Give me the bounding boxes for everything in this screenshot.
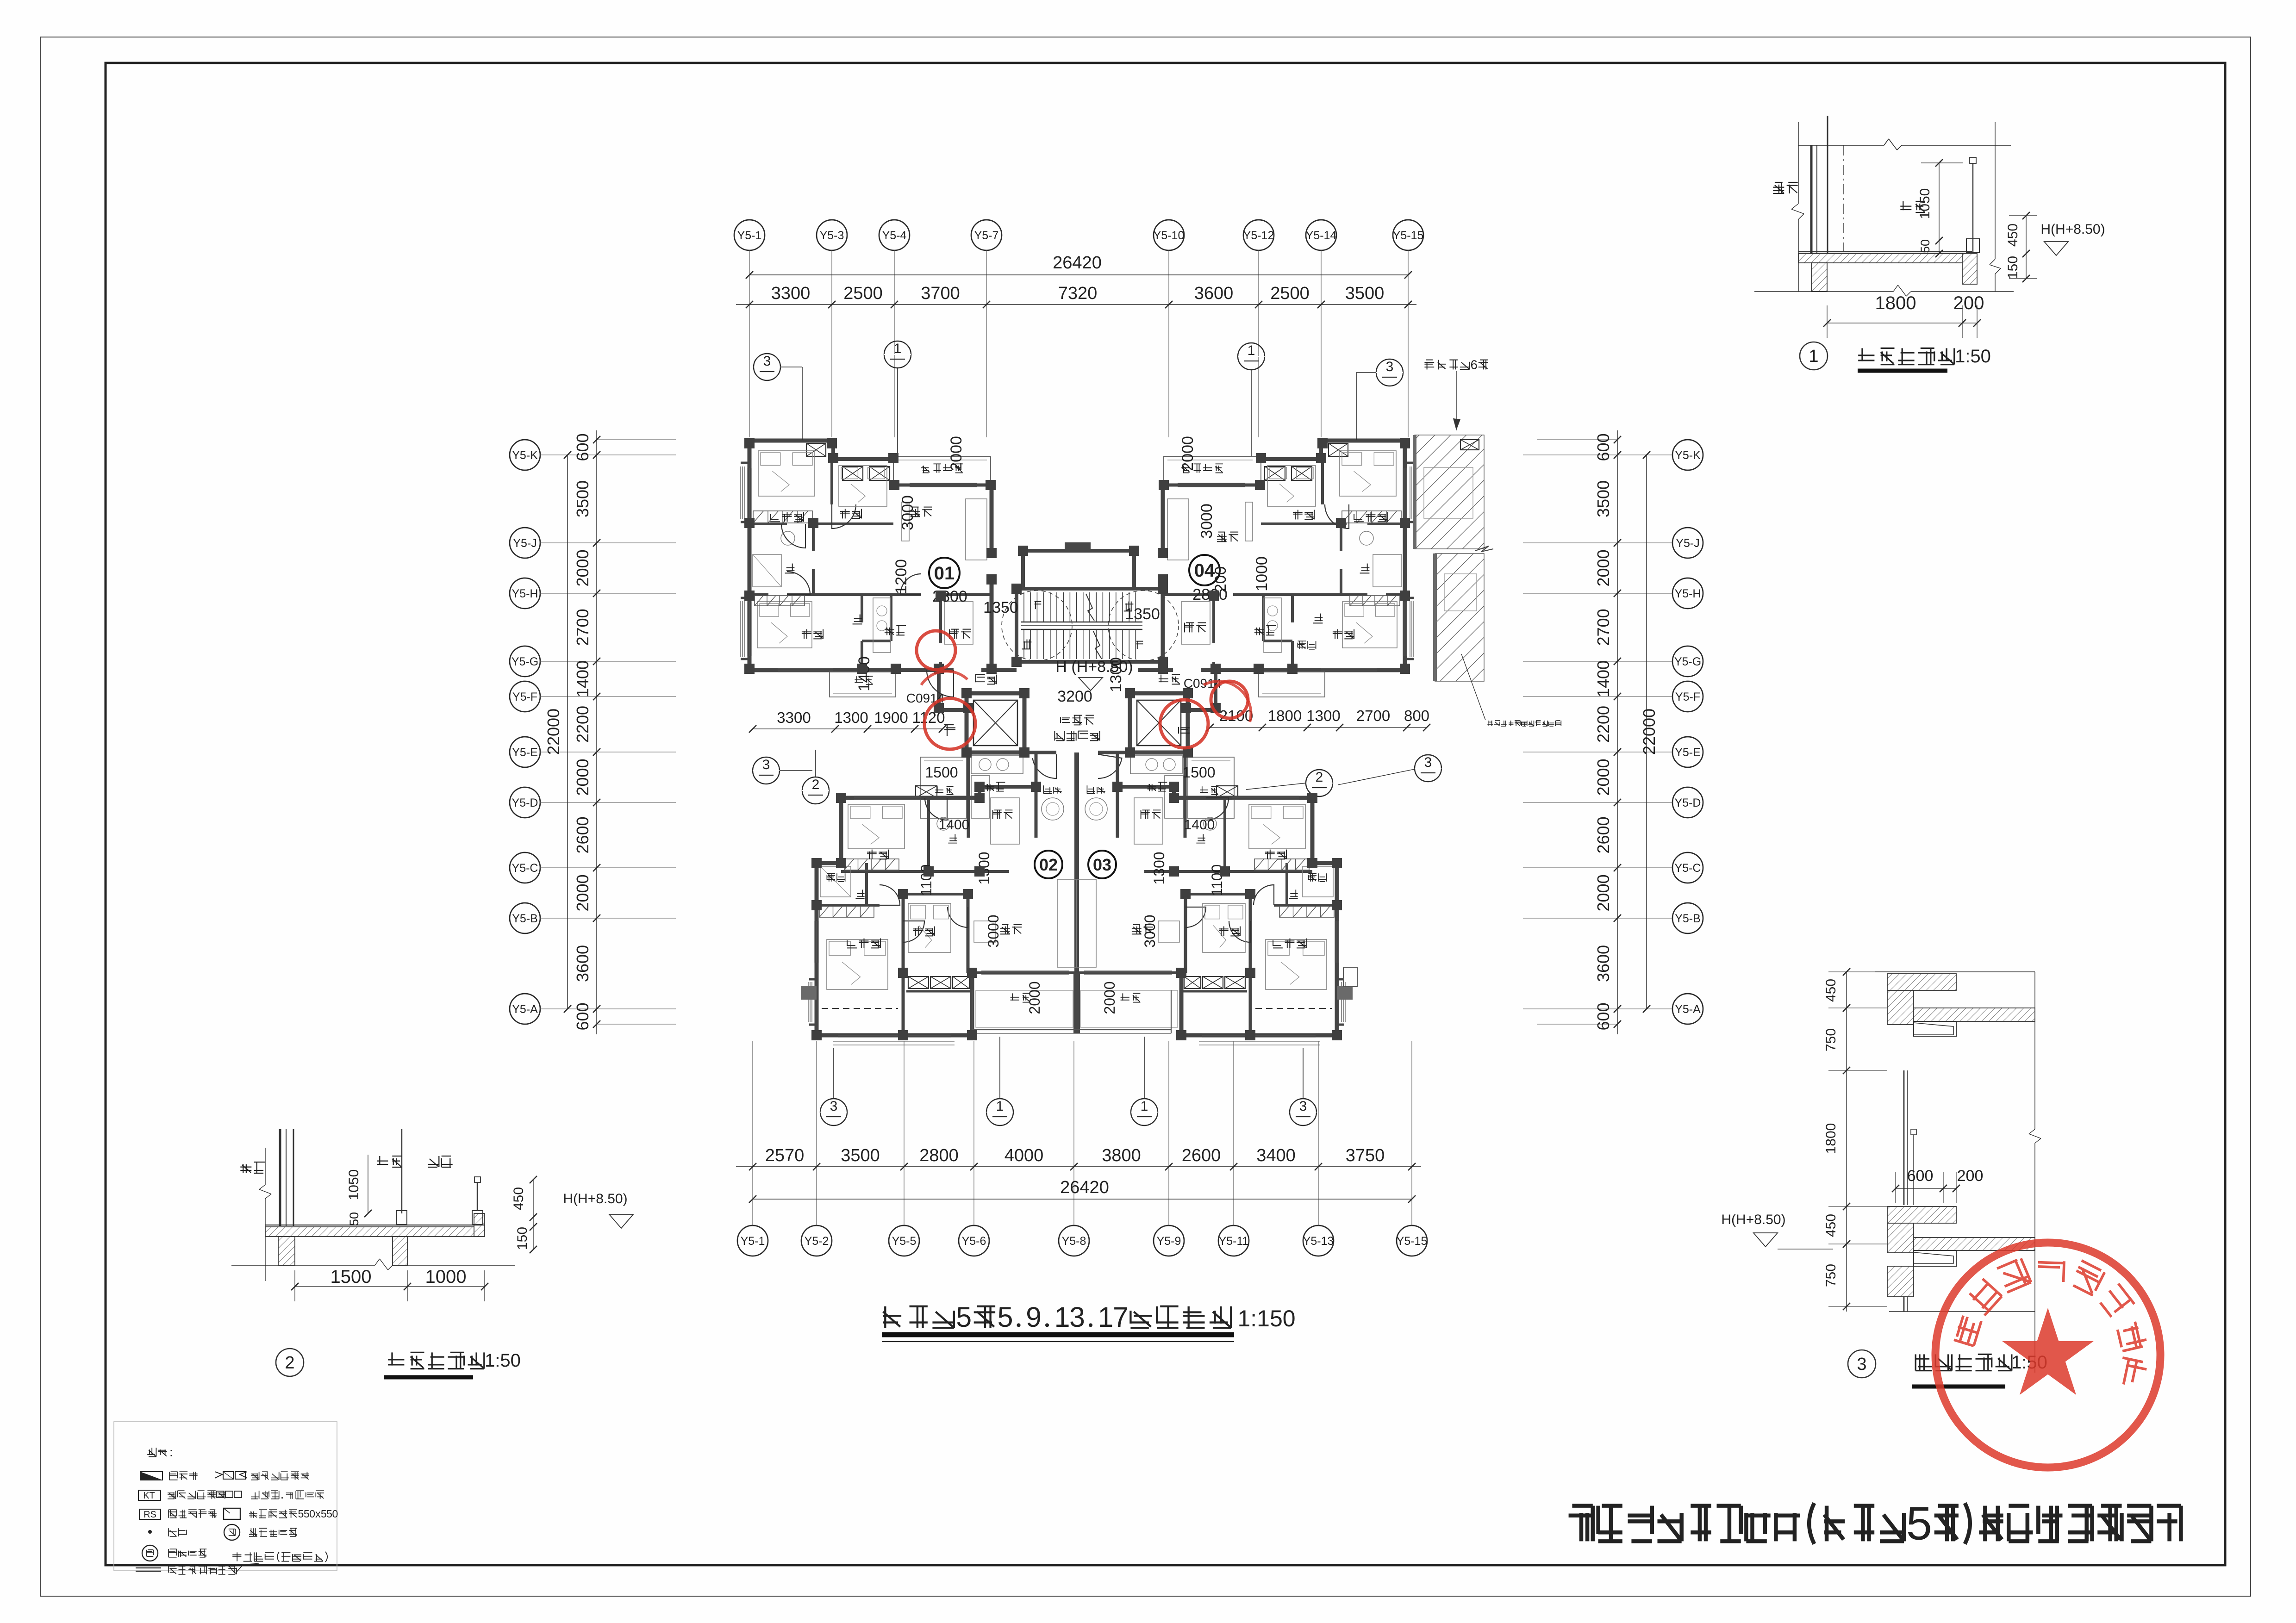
svg-text:Y5-E: Y5-E <box>512 746 538 759</box>
svg-text:750: 750 <box>1823 1264 1839 1287</box>
svg-text:9: 9 <box>1026 1301 1042 1333</box>
svg-text:Y5-C: Y5-C <box>512 862 538 875</box>
svg-text:7320: 7320 <box>1058 284 1098 303</box>
svg-text:5: 5 <box>304 1508 310 1520</box>
svg-text:1800: 1800 <box>1875 293 1916 313</box>
svg-text:1350: 1350 <box>983 599 1018 616</box>
svg-text:5: 5 <box>298 1508 304 1520</box>
svg-text:2200: 2200 <box>573 706 592 743</box>
svg-text:Y5-11: Y5-11 <box>1219 1235 1249 1248</box>
svg-text:1900: 1900 <box>874 709 908 726</box>
svg-text:0: 0 <box>309 1508 315 1520</box>
svg-text:1000: 1000 <box>425 1267 467 1287</box>
svg-text:3000: 3000 <box>985 914 1002 947</box>
svg-text:Y5-E: Y5-E <box>1675 746 1701 759</box>
svg-text:1:50: 1:50 <box>1955 346 1991 367</box>
svg-text:22000: 22000 <box>1640 709 1659 755</box>
svg-text:H(H+8.50): H(H+8.50) <box>563 1191 627 1206</box>
svg-text:3500: 3500 <box>1594 480 1613 517</box>
svg-text:2700: 2700 <box>1356 707 1390 724</box>
svg-text:1350: 1350 <box>1125 605 1160 623</box>
svg-text:3500: 3500 <box>573 480 592 517</box>
svg-text:H(H+8.50): H(H+8.50) <box>1721 1212 1785 1227</box>
svg-text:2000: 2000 <box>573 549 592 586</box>
svg-text:01: 01 <box>934 563 955 584</box>
svg-text:1: 1 <box>996 1099 1004 1114</box>
svg-text:Y5-J: Y5-J <box>513 537 537 550</box>
svg-text:Y5-1: Y5-1 <box>741 1235 765 1248</box>
svg-text:Y5-9: Y5-9 <box>1157 1235 1181 1248</box>
svg-text:200: 200 <box>1957 1167 1984 1185</box>
svg-text:22000: 22000 <box>544 709 563 755</box>
svg-text:600: 600 <box>573 433 592 461</box>
svg-text:Y5-1: Y5-1 <box>737 229 762 242</box>
svg-text:Y5-15: Y5-15 <box>1393 229 1424 242</box>
svg-text:Y5-7: Y5-7 <box>974 229 999 242</box>
svg-text:1200: 1200 <box>892 559 910 594</box>
svg-text:2600: 2600 <box>1594 816 1613 853</box>
svg-text:H (H+8.50): H (H+8.50) <box>1055 658 1133 676</box>
svg-text:1:50: 1:50 <box>485 1350 521 1371</box>
svg-text:3: 3 <box>1299 1099 1307 1114</box>
svg-text:2200: 2200 <box>1594 706 1613 743</box>
svg-text:600: 600 <box>1907 1167 1934 1185</box>
svg-text:3600: 3600 <box>1194 284 1234 303</box>
svg-text:2000: 2000 <box>1101 981 1118 1014</box>
svg-text:Y5-D: Y5-D <box>512 796 538 809</box>
svg-text:5: 5 <box>321 1508 327 1520</box>
svg-text:200: 200 <box>1953 293 1984 313</box>
svg-text:600: 600 <box>1594 1002 1613 1030</box>
svg-text:2600: 2600 <box>1182 1146 1221 1165</box>
svg-text:KT: KT <box>143 1491 155 1501</box>
svg-text:1000: 1000 <box>1253 556 1271 591</box>
svg-text:3700: 3700 <box>921 284 960 303</box>
svg-text:2000: 2000 <box>1594 874 1613 911</box>
svg-text:1: 1 <box>1141 1099 1148 1114</box>
svg-text:26420: 26420 <box>1053 253 1102 273</box>
svg-text:3: 3 <box>762 757 770 772</box>
svg-text:26420: 26420 <box>1060 1178 1109 1197</box>
svg-text:3500: 3500 <box>841 1146 880 1165</box>
svg-text:450: 450 <box>511 1187 526 1210</box>
svg-text:2600: 2600 <box>573 816 592 853</box>
svg-text:1050: 1050 <box>346 1169 362 1200</box>
svg-text:2700: 2700 <box>573 609 592 646</box>
svg-text:5: 5 <box>326 1508 332 1520</box>
svg-text:600: 600 <box>1594 433 1613 461</box>
svg-text:3000: 3000 <box>1142 914 1158 947</box>
svg-text:1500: 1500 <box>925 764 958 781</box>
svg-text:2570: 2570 <box>765 1146 805 1165</box>
svg-text:3: 3 <box>830 1099 838 1114</box>
svg-text:7: 7 <box>1113 1301 1129 1333</box>
svg-text:Y5-12: Y5-12 <box>1243 229 1274 242</box>
svg-text:3: 3 <box>1386 359 1394 374</box>
svg-text:03: 03 <box>1093 855 1111 874</box>
svg-text:1400: 1400 <box>573 660 592 697</box>
svg-text:50: 50 <box>1918 239 1932 253</box>
svg-text:3: 3 <box>1424 755 1432 770</box>
svg-text:1: 1 <box>1098 1301 1114 1333</box>
svg-text:Y5-B: Y5-B <box>1675 912 1701 925</box>
svg-text:Y5-G: Y5-G <box>512 655 538 668</box>
svg-text:Y5-C: Y5-C <box>1675 862 1701 875</box>
svg-text:5: 5 <box>956 1301 972 1333</box>
svg-text:1500: 1500 <box>1182 764 1215 781</box>
svg-text:3000: 3000 <box>1198 504 1216 539</box>
svg-text:3: 3 <box>763 354 771 369</box>
svg-text:Y5-10: Y5-10 <box>1154 229 1185 242</box>
svg-text:2000: 2000 <box>948 436 965 471</box>
svg-text:Y5-A: Y5-A <box>1675 1003 1701 1016</box>
svg-text:2000: 2000 <box>573 874 592 911</box>
svg-text:Y5-G: Y5-G <box>1674 655 1701 668</box>
svg-text:2000: 2000 <box>1179 436 1197 471</box>
svg-text:600: 600 <box>573 1002 592 1030</box>
svg-text:2000: 2000 <box>573 759 592 796</box>
svg-text:1400: 1400 <box>939 817 970 833</box>
svg-text:Y5-15: Y5-15 <box>1397 1235 1428 1248</box>
svg-text:3000: 3000 <box>899 495 917 530</box>
svg-text:Y5-3: Y5-3 <box>820 229 844 242</box>
svg-text:450: 450 <box>1823 1214 1839 1237</box>
svg-text:6: 6 <box>1471 357 1478 372</box>
svg-text:2500: 2500 <box>1270 284 1310 303</box>
svg-text:3800: 3800 <box>1102 1146 1141 1165</box>
svg-text:Y5-13: Y5-13 <box>1303 1235 1334 1248</box>
svg-text:02: 02 <box>1039 855 1058 874</box>
svg-text::: : <box>169 1446 173 1459</box>
svg-text:1500: 1500 <box>331 1267 372 1287</box>
svg-text:2000: 2000 <box>1594 759 1613 796</box>
svg-text:Y5-K: Y5-K <box>1675 449 1701 462</box>
svg-text:Y5-A: Y5-A <box>512 1003 538 1016</box>
svg-text:Y5-F: Y5-F <box>512 690 537 703</box>
svg-text:2: 2 <box>812 777 820 792</box>
svg-text:1400: 1400 <box>1184 817 1215 833</box>
svg-text:2: 2 <box>285 1353 294 1373</box>
svg-text:Y5-2: Y5-2 <box>805 1235 829 1248</box>
svg-text:Y5-5: Y5-5 <box>892 1235 917 1248</box>
svg-text:Y5-K: Y5-K <box>512 449 538 462</box>
svg-text:Y5-J: Y5-J <box>1676 537 1699 550</box>
svg-text:Y5-6: Y5-6 <box>962 1235 986 1248</box>
svg-text:3600: 3600 <box>1594 945 1613 982</box>
svg-text:1300: 1300 <box>1306 707 1340 724</box>
svg-text:3500: 3500 <box>1345 284 1385 303</box>
svg-text:3: 3 <box>1857 1355 1866 1374</box>
svg-text:Y5-D: Y5-D <box>1675 796 1701 809</box>
svg-text:2500: 2500 <box>843 284 883 303</box>
svg-text:3200: 3200 <box>1057 688 1092 705</box>
svg-text:3: 3 <box>1069 1301 1085 1333</box>
svg-text:4000: 4000 <box>1004 1146 1044 1165</box>
svg-text:RS: RS <box>143 1510 156 1520</box>
svg-text:1800: 1800 <box>1823 1123 1839 1154</box>
svg-text:2700: 2700 <box>1594 609 1613 646</box>
svg-text:0: 0 <box>332 1508 338 1520</box>
svg-text:450: 450 <box>2005 224 2021 247</box>
svg-text:Y5-4: Y5-4 <box>882 229 907 242</box>
svg-text:Y5-8: Y5-8 <box>1062 1235 1086 1248</box>
svg-text:750: 750 <box>1823 1028 1839 1051</box>
svg-text:Y5-F: Y5-F <box>1675 690 1700 703</box>
svg-text:5: 5 <box>998 1301 1013 1333</box>
svg-text:1: 1 <box>1809 347 1818 366</box>
svg-text:2000: 2000 <box>1594 549 1613 586</box>
svg-text:3400: 3400 <box>1256 1146 1296 1165</box>
svg-text:1: 1 <box>1054 1301 1070 1333</box>
svg-text:3600: 3600 <box>573 945 592 982</box>
svg-text:Y5-H: Y5-H <box>1675 587 1701 600</box>
svg-text:H(H+8.50): H(H+8.50) <box>2040 222 2105 237</box>
svg-text:x: x <box>315 1508 321 1520</box>
svg-text:Y5-B: Y5-B <box>512 912 538 925</box>
svg-text:2000: 2000 <box>1026 981 1043 1014</box>
svg-text:150: 150 <box>2005 256 2021 279</box>
svg-text:800: 800 <box>1404 707 1429 724</box>
svg-text:3300: 3300 <box>777 709 811 726</box>
svg-text:150: 150 <box>515 1227 530 1250</box>
svg-text:2800: 2800 <box>919 1146 959 1165</box>
svg-text:1800: 1800 <box>1268 707 1302 724</box>
svg-text:1300: 1300 <box>1151 852 1167 884</box>
svg-text:450: 450 <box>1823 979 1839 1002</box>
svg-text:Y5-14: Y5-14 <box>1306 229 1337 242</box>
svg-text:50: 50 <box>347 1212 361 1226</box>
svg-text:1: 1 <box>1248 343 1255 358</box>
svg-text:5: 5 <box>1906 1498 1932 1550</box>
svg-text:1:150: 1:150 <box>1237 1306 1295 1331</box>
svg-text:1300: 1300 <box>834 709 868 726</box>
svg-text:Y5-H: Y5-H <box>512 587 538 600</box>
svg-text:2: 2 <box>1316 770 1323 785</box>
svg-text:3750: 3750 <box>1346 1146 1385 1165</box>
svg-text:1400: 1400 <box>1594 660 1613 697</box>
svg-text:1: 1 <box>894 341 902 356</box>
svg-text:3300: 3300 <box>771 284 811 303</box>
